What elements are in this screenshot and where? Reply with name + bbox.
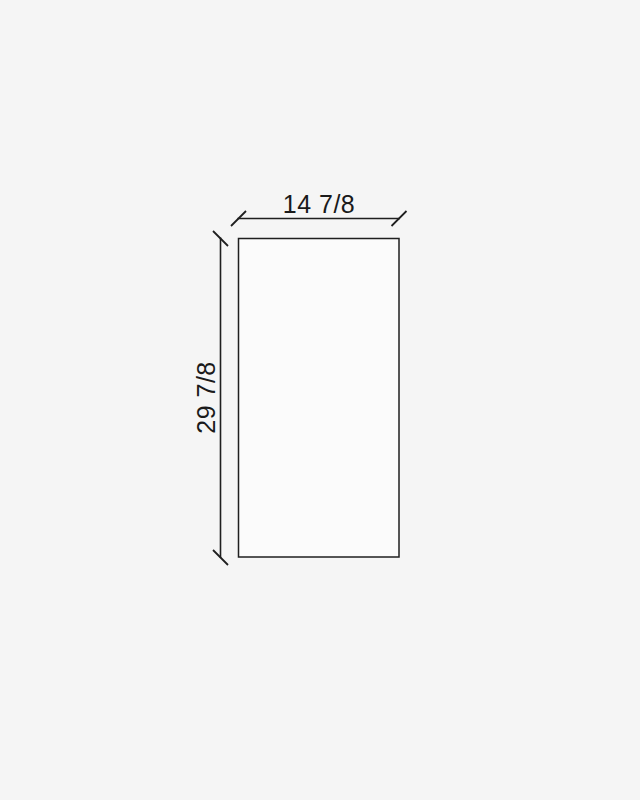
panel-rect [239, 239, 400, 558]
diagram-canvas: 14 7/8 29 7/8 [0, 0, 640, 800]
panel [239, 239, 400, 558]
width-dimension-label: 14 7/8 [283, 190, 356, 218]
dimension-drawing: 14 7/8 29 7/8 [0, 0, 640, 800]
height-dimension-label: 29 7/8 [192, 361, 220, 434]
